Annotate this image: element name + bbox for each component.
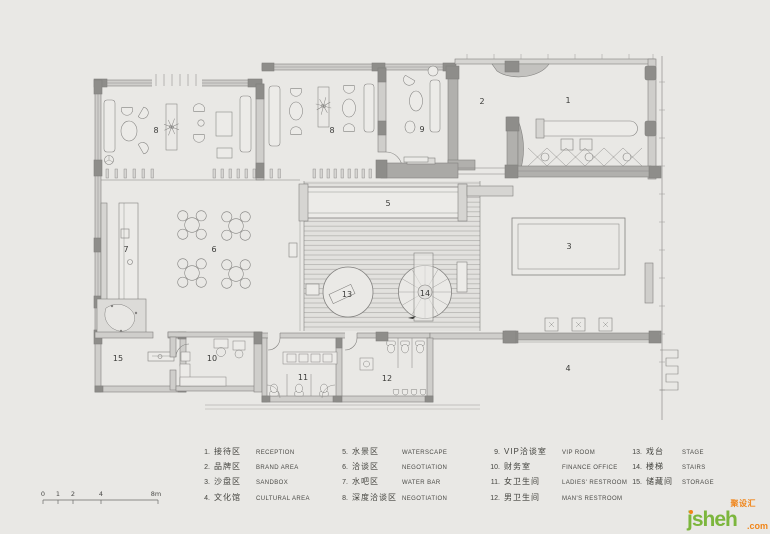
bottom-rooms-walls <box>95 331 516 409</box>
floor-plan-page: 1 2 3 4 5 6 7 8 8 9 10 11 12 13 14 15 0 … <box>0 0 770 534</box>
legend-item-9: 9.VIP洽谈室VIP ROOM <box>484 446 627 461</box>
legend-column-4: 13.戏台STAGE 14.楼梯STAIRS 15.储藏间STORAGE <box>626 446 714 492</box>
logo-j-dot <box>689 510 693 514</box>
logo-name-text: jsheh <box>687 509 737 530</box>
logo-tld-text: .com <box>747 521 768 531</box>
scale-label-8m: 8m <box>151 490 161 498</box>
legend-item-3: 3.沙盘区SANDBOX <box>198 476 310 491</box>
legend-item-5: 5.水景区WATERSCAPE <box>336 446 447 461</box>
legend-column-2: 5.水景区WATERSCAPE 6.洽谈区NEGOTIATION 7.水吧区WA… <box>336 446 447 507</box>
legend-column-3: 9.VIP洽谈室VIP ROOM 10.财务室FINANCE OFFICE 11… <box>484 446 627 507</box>
bench <box>457 262 467 292</box>
room-label-3: 3 <box>566 242 571 251</box>
legend-item-15: 15.储藏间STORAGE <box>626 476 714 491</box>
room-label-4: 4 <box>565 364 570 373</box>
reception-desk <box>542 121 638 136</box>
room-label-11: 11 <box>298 373 308 382</box>
legend-item-10: 10.财务室FINANCE OFFICE <box>484 461 627 476</box>
room-label-9: 9 <box>419 125 424 134</box>
scale-label-0: 0 <box>41 490 45 498</box>
room-label-1: 1 <box>565 96 570 105</box>
room8b-furniture <box>269 84 374 146</box>
room9-furniture <box>401 66 440 162</box>
display-stools <box>545 318 612 331</box>
pond <box>97 299 146 336</box>
room-label-14: 14 <box>420 289 430 298</box>
jsheh-logo: 聚设汇 jsheh .com <box>687 497 769 531</box>
legend-item-13: 13.戏台STAGE <box>626 446 714 461</box>
room-label-7: 7 <box>123 245 128 254</box>
legend-item-7: 7.水吧区WATER BAR <box>336 476 447 491</box>
legend-item-8: 8.深度洽谈区NEGOTIATION <box>336 492 447 507</box>
room8a-furniture <box>104 96 251 158</box>
legend-item-2: 2.品牌区BRAND AREA <box>198 461 310 476</box>
room-label-5: 5 <box>385 199 390 208</box>
room-label-8b: 8 <box>329 126 334 135</box>
legend-item-11: 11.女卫生间LADIES' RESTROOM <box>484 476 627 491</box>
room-label-2: 2 <box>479 97 484 106</box>
screen-mullions <box>101 169 372 180</box>
scale-label-4: 4 <box>99 490 103 498</box>
legend-item-12: 12.男卫生间MAN'S RESTROOM <box>484 492 627 507</box>
legend-item-6: 6.洽谈区NEGOTIATION <box>336 461 447 476</box>
room-label-15: 15 <box>113 354 123 363</box>
scale-label-2: 2 <box>71 490 75 498</box>
room-label-12: 12 <box>382 374 392 383</box>
waterscape-area <box>289 181 513 331</box>
scale-bar: 0 1 2 4 8m <box>41 490 161 504</box>
reception-room1 <box>528 119 642 166</box>
legend-column-1: 1.接待区RECEPTION 2.品牌区BRAND AREA 3.沙盘区SAND… <box>198 446 310 507</box>
legend-item-4: 4.文化馆CULTURAL AREA <box>198 492 310 507</box>
room-label-13: 13 <box>342 290 352 299</box>
mens-restroom-room12 <box>360 338 426 395</box>
room-label-10: 10 <box>207 354 217 363</box>
room-label-6: 6 <box>211 245 216 254</box>
bridge-room5 <box>299 184 513 221</box>
room-label-8a: 8 <box>153 126 158 135</box>
legend-item-1: 1.接待区RECEPTION <box>198 446 310 461</box>
legend-item-14: 14.楼梯STAIRS <box>626 461 714 476</box>
scale-label-1: 1 <box>56 490 60 498</box>
bench <box>289 243 297 257</box>
